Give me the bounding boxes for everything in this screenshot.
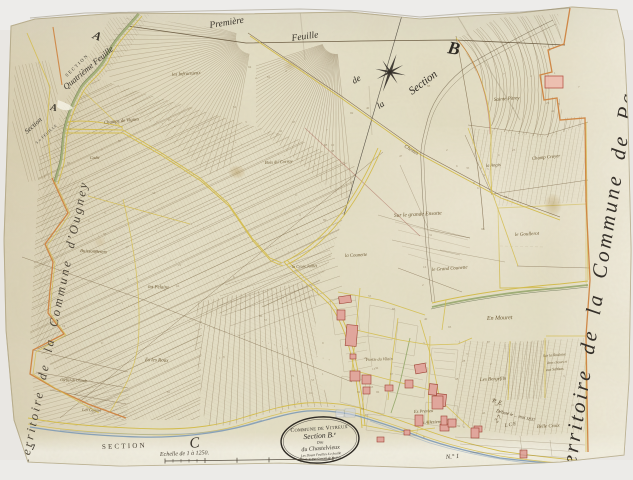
svg-text:87: 87 <box>365 413 369 417</box>
svg-text:77: 77 <box>543 45 547 49</box>
svg-text:87: 87 <box>118 139 122 143</box>
svg-text:Cadie: Cadie <box>90 155 100 160</box>
svg-text:93: 93 <box>448 325 452 329</box>
svg-text:Partie du Vilain: Partie du Vilain <box>365 356 393 362</box>
svg-text:En Mouret: En Mouret <box>486 315 513 322</box>
svg-text:82: 82 <box>167 390 171 394</box>
svg-text:la Croix Jaillet: la Croix Jaillet <box>292 263 318 269</box>
svg-text:52: 52 <box>233 105 237 109</box>
svg-text:62: 62 <box>176 284 180 288</box>
svg-text:63: 63 <box>370 385 374 389</box>
svg-text:61: 61 <box>309 391 313 395</box>
svg-text:96: 96 <box>376 390 380 394</box>
svg-text:75: 75 <box>291 374 295 378</box>
svg-text:29: 29 <box>364 356 368 360</box>
svg-text:42: 42 <box>279 129 283 133</box>
svg-text:98: 98 <box>324 143 328 147</box>
svg-text:N.° 1: N.° 1 <box>445 453 460 461</box>
svg-text:67: 67 <box>168 118 172 122</box>
svg-text:38: 38 <box>504 195 508 199</box>
svg-text:55: 55 <box>103 232 107 236</box>
svg-text:59: 59 <box>457 424 461 428</box>
svg-text:43: 43 <box>482 411 486 415</box>
svg-text:87: 87 <box>487 340 491 344</box>
svg-text:23: 23 <box>512 148 516 152</box>
svg-text:40: 40 <box>366 106 370 110</box>
svg-text:10: 10 <box>62 324 66 328</box>
svg-text:31: 31 <box>429 233 433 237</box>
svg-text:94: 94 <box>248 65 252 69</box>
svg-text:98: 98 <box>95 249 99 253</box>
svg-text:SECTION: SECTION <box>102 441 147 451</box>
svg-text:53: 53 <box>311 378 315 382</box>
svg-text:98: 98 <box>331 149 335 153</box>
svg-text:41: 41 <box>571 403 575 407</box>
svg-text:35: 35 <box>466 166 470 170</box>
svg-text:47: 47 <box>399 154 403 158</box>
svg-text:10: 10 <box>331 143 335 147</box>
svg-text:98: 98 <box>481 227 485 231</box>
svg-text:88: 88 <box>427 84 431 88</box>
svg-text:25: 25 <box>546 101 550 105</box>
svg-text:96: 96 <box>259 314 263 318</box>
svg-text:67: 67 <box>390 372 394 376</box>
svg-text:14: 14 <box>557 367 561 371</box>
svg-text:98: 98 <box>455 377 459 381</box>
svg-text:36: 36 <box>375 366 379 370</box>
svg-text:44: 44 <box>551 109 555 113</box>
svg-text:28: 28 <box>462 359 466 363</box>
svg-text:55: 55 <box>368 294 372 298</box>
svg-text:55: 55 <box>264 318 268 322</box>
svg-text:97: 97 <box>67 161 71 165</box>
svg-text:81: 81 <box>267 75 271 79</box>
svg-text:34: 34 <box>152 191 156 195</box>
svg-text:16: 16 <box>423 265 427 269</box>
svg-text:Les Guilles: Les Guilles <box>81 407 101 413</box>
svg-text:21: 21 <box>178 263 182 267</box>
svg-text:82: 82 <box>357 390 361 394</box>
svg-text:Es les Roux: Es les Roux <box>144 358 169 364</box>
svg-text:Dite: Dite <box>316 440 324 445</box>
svg-text:99: 99 <box>323 218 327 222</box>
svg-text:98: 98 <box>361 407 365 411</box>
svg-text:47: 47 <box>292 120 296 124</box>
svg-text:83: 83 <box>392 307 396 311</box>
svg-text:69: 69 <box>350 111 354 115</box>
svg-text:40: 40 <box>424 317 428 321</box>
